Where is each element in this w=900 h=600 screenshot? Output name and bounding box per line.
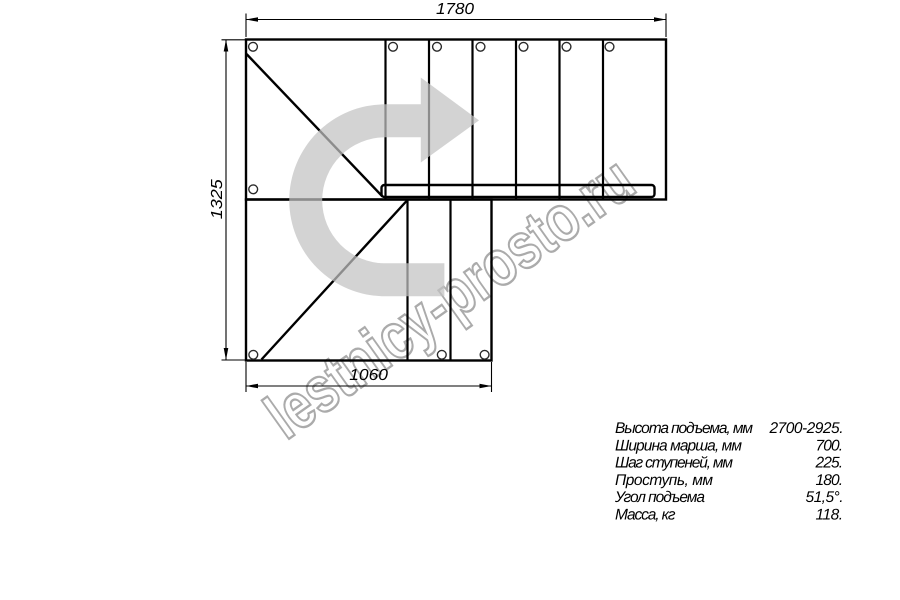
svg-text:51,5°.: 51,5°. <box>806 489 844 506</box>
svg-text:Угол подъема: Угол подъема <box>614 489 705 506</box>
svg-text:Масса, кг: Масса, кг <box>615 507 676 524</box>
svg-text:1780: 1780 <box>436 1 474 18</box>
svg-text:2700-2925.: 2700-2925. <box>769 420 844 437</box>
svg-text:118.: 118. <box>816 507 844 524</box>
svg-text:180.: 180. <box>816 472 844 489</box>
svg-text:1325: 1325 <box>209 179 226 219</box>
svg-text:700.: 700. <box>816 437 844 454</box>
svg-text:Шаг ступеней, мм: Шаг ступеней, мм <box>615 455 733 472</box>
svg-text:Проступь, мм: Проступь, мм <box>615 472 713 489</box>
svg-text:Ширина марша, мм: Ширина марша, мм <box>615 437 742 454</box>
svg-text:1060: 1060 <box>349 367 388 384</box>
svg-text:Высота подъема, мм: Высота подъема, мм <box>615 420 753 437</box>
svg-text:225.: 225. <box>815 455 844 472</box>
